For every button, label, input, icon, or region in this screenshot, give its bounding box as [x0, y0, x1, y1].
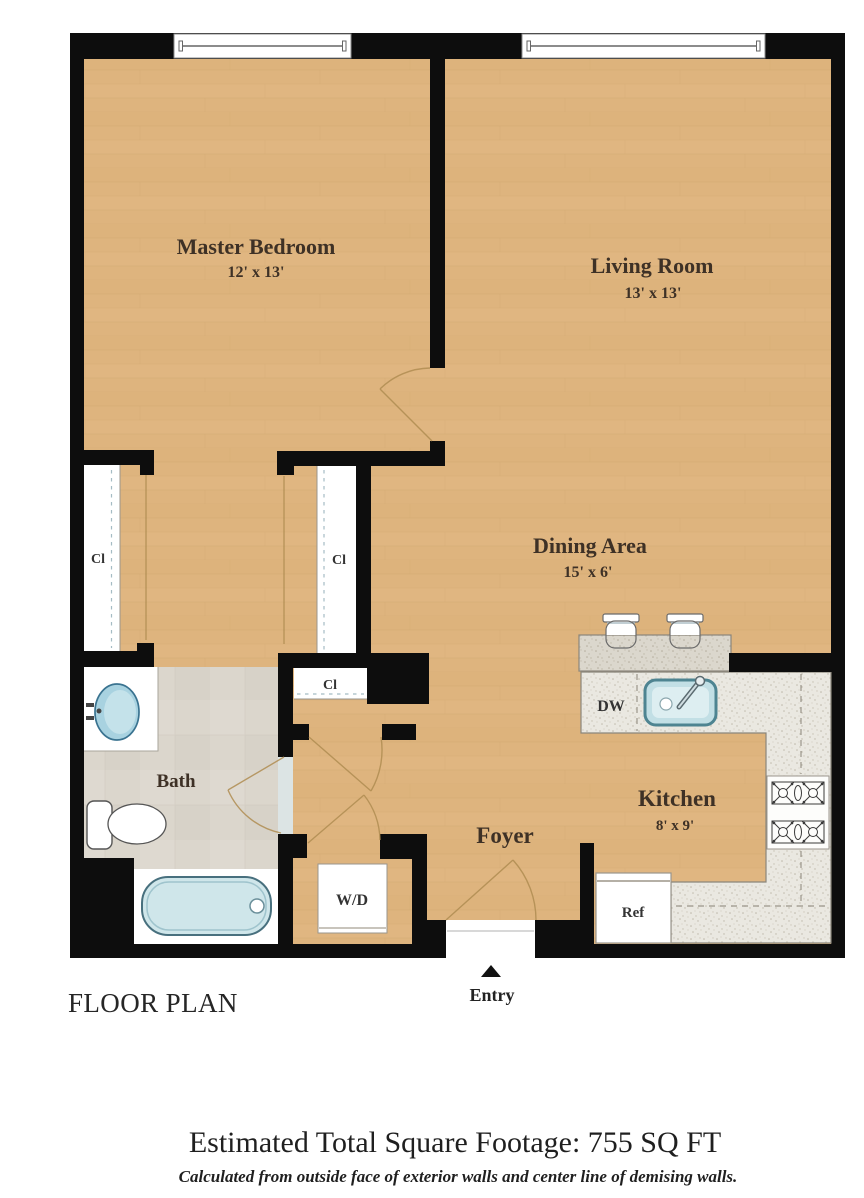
- svg-text:Ref: Ref: [622, 905, 645, 921]
- svg-text:FLOOR PLAN: FLOOR PLAN: [68, 988, 238, 1018]
- svg-text:Cl: Cl: [332, 553, 346, 568]
- svg-text:Bath: Bath: [156, 771, 196, 792]
- svg-text:Entry: Entry: [470, 985, 515, 1005]
- svg-text:13' x 13': 13' x 13': [625, 285, 682, 302]
- svg-text:15' x 6': 15' x 6': [564, 564, 613, 581]
- svg-text:8' x 9': 8' x 9': [656, 818, 694, 834]
- svg-text:DW: DW: [597, 698, 625, 715]
- svg-text:Foyer: Foyer: [476, 823, 533, 848]
- svg-text:Dining Area: Dining Area: [533, 533, 647, 558]
- svg-text:Cl: Cl: [91, 552, 105, 567]
- svg-text:Living Room: Living Room: [591, 253, 714, 278]
- svg-text:W/D: W/D: [336, 892, 368, 909]
- svg-text:Cl: Cl: [323, 678, 337, 693]
- svg-text:Master Bedroom: Master Bedroom: [177, 234, 336, 259]
- svg-text:Kitchen: Kitchen: [638, 786, 716, 811]
- svg-text:Calculated from outside face o: Calculated from outside face of exterior…: [179, 1167, 738, 1186]
- svg-text:Estimated Total Square Footage: Estimated Total Square Footage: 755 SQ F…: [189, 1126, 721, 1159]
- svg-text:12' x 13': 12' x 13': [228, 264, 285, 281]
